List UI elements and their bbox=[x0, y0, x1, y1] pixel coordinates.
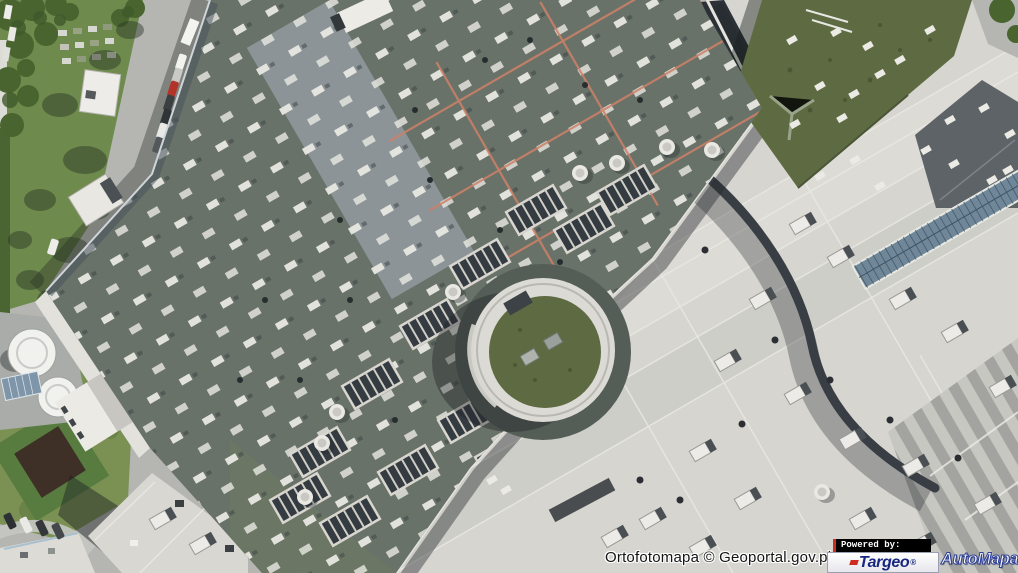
powered-by-label: Powered by: bbox=[833, 539, 931, 552]
targeo-logo-text: Targeo bbox=[859, 555, 909, 571]
targeo-registered-mark: ® bbox=[910, 558, 916, 567]
house-roof bbox=[79, 70, 120, 117]
orthophoto-map[interactable] bbox=[0, 0, 1018, 573]
automapa-logo[interactable]: AutoMapa ® bbox=[941, 546, 1018, 572]
map-attribution: Ortofotomapa © Geoportal.gov.pl bbox=[605, 549, 831, 566]
targeo-red-mark-icon bbox=[849, 560, 859, 565]
automapa-logo-text: AutoMapa bbox=[941, 550, 1018, 569]
map-viewport: Ortofotomapa © Geoportal.gov.pl Powered … bbox=[0, 0, 1018, 573]
targeo-logo[interactable]: Targeo ® bbox=[827, 552, 939, 573]
